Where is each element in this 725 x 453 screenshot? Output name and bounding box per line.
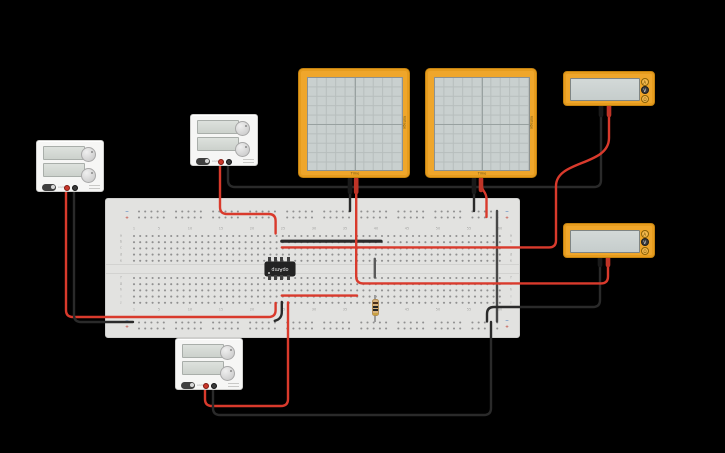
- power-supply-3[interactable]: on/off: [175, 338, 243, 390]
- psu-power-toggle[interactable]: [196, 158, 210, 165]
- psu-fine-print: [243, 159, 254, 164]
- psu-current-display: [197, 137, 239, 151]
- psu3-negative-wire[interactable]: [213, 322, 491, 415]
- scope-y-axis: [482, 78, 483, 170]
- psu-fine-print: [89, 185, 100, 190]
- mode-volts-button[interactable]: V: [641, 86, 649, 94]
- circuit-workspace: 1155101015152020252530303535404045455050…: [0, 0, 725, 453]
- power-supply-1[interactable]: on/off: [36, 140, 104, 192]
- psu-current-knob[interactable]: [81, 168, 96, 183]
- oscilloscope-1[interactable]: Time Voltage: [298, 68, 410, 178]
- psu-fine-print: [228, 383, 239, 388]
- psu1-positive-wire[interactable]: [66, 189, 276, 317]
- psu-current-knob[interactable]: [220, 366, 235, 381]
- psu-voltage-knob[interactable]: [220, 345, 235, 360]
- oscilloscope-2[interactable]: Time Voltage: [425, 68, 537, 178]
- multimeter-1[interactable]: A V Ω: [563, 71, 655, 106]
- multimeter-2[interactable]: A V Ω: [563, 223, 655, 258]
- oscilloscope-screen: [434, 77, 530, 171]
- psu-negative-terminal[interactable]: [72, 185, 78, 191]
- psu-positive-terminal[interactable]: [64, 185, 70, 191]
- psu-voltage-knob[interactable]: [81, 147, 96, 162]
- psu-current-display: [182, 361, 224, 375]
- toggle-dot-icon: [205, 159, 209, 163]
- mode-ohms-button[interactable]: Ω: [641, 95, 649, 103]
- power-supply-2[interactable]: on/off: [190, 114, 258, 166]
- psu-voltage-display: [43, 146, 85, 160]
- multimeter-display: [570, 230, 640, 253]
- psu1-negative-wire[interactable]: [74, 189, 133, 322]
- mode-ohms-button[interactable]: Ω: [641, 247, 649, 255]
- psu-current-display: [43, 163, 85, 177]
- psu-positive-terminal[interactable]: [203, 383, 209, 389]
- psu-voltage-knob[interactable]: [235, 121, 250, 136]
- scope-y-axis: [355, 78, 356, 170]
- mode-amps-button[interactable]: A: [641, 78, 649, 86]
- psu-current-knob[interactable]: [235, 142, 250, 157]
- psu-positive-terminal[interactable]: [218, 159, 224, 165]
- multimeter2-black-wire[interactable]: [487, 264, 600, 322]
- scope-time-label: Time: [345, 172, 365, 176]
- psu-negative-terminal[interactable]: [211, 383, 217, 389]
- multimeter-display: [570, 78, 640, 101]
- toggle-dot-icon: [190, 383, 194, 387]
- scope-time-label: Time: [472, 172, 492, 176]
- oscilloscope-screen: [307, 77, 403, 171]
- psu-negative-terminal[interactable]: [226, 159, 232, 165]
- mode-volts-button[interactable]: V: [641, 238, 649, 246]
- mode-amps-button[interactable]: A: [641, 230, 649, 238]
- scope-voltage-label: Voltage: [529, 113, 533, 133]
- psu2-negative-wire[interactable]: [228, 110, 601, 187]
- psu-voltage-display: [197, 120, 239, 134]
- psu-voltage-display: [182, 344, 224, 358]
- psu-power-toggle[interactable]: [42, 184, 56, 191]
- toggle-dot-icon: [51, 185, 55, 189]
- psu-power-toggle[interactable]: [181, 382, 195, 389]
- scope-voltage-label: Voltage: [402, 113, 406, 133]
